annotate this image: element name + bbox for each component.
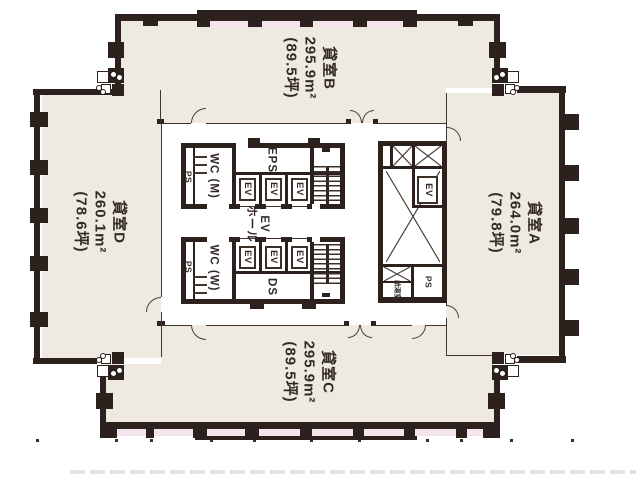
wall-segment: [458, 14, 473, 26]
wall-segment: [143, 14, 158, 26]
room-d-label: 貸室D 260.1m² (78.6坪): [72, 191, 129, 254]
elevator-door-line: [292, 206, 307, 207]
window-strip: [415, 429, 456, 436]
staircase: [314, 244, 340, 284]
wall-segment: [285, 242, 288, 274]
dot-mark: [571, 439, 574, 442]
x-brace-shaft: [393, 146, 412, 166]
wall-segment: [259, 175, 262, 204]
ps-upper-label: PS: [184, 171, 193, 183]
room-a-tsubo: (79.8坪): [487, 192, 506, 255]
window-strip: [262, 21, 300, 27]
dot-mark: [115, 439, 118, 442]
corner-fixture: [96, 68, 124, 96]
corner-fixture: [492, 352, 520, 380]
wall-segment: [340, 143, 345, 209]
wall-segment: [411, 267, 414, 297]
wall-segment: [559, 165, 579, 181]
wall-segment: [30, 312, 48, 327]
corner-fixture-part: [507, 365, 519, 377]
stall-partition-line: [193, 156, 207, 158]
wall-segment: [30, 256, 48, 271]
wall-segment: [559, 269, 579, 285]
boundary-line: [372, 325, 412, 326]
wall-segment: [181, 143, 345, 148]
window-strip: [313, 21, 353, 27]
wall-segment: [412, 205, 442, 208]
corner-fixture-part: [97, 365, 109, 377]
corner-fixture-part: [112, 84, 124, 96]
ev-label: EV: [268, 182, 278, 196]
room-c-name: 貸室C: [319, 341, 338, 404]
wall-segment: [559, 320, 579, 336]
wall-segment: [245, 422, 259, 438]
wall-segment: [30, 160, 48, 175]
wall-segment: [489, 42, 506, 58]
boundary-line: [446, 355, 494, 356]
wall-segment: [30, 112, 48, 127]
corner-fixture: [96, 352, 124, 380]
corner-fixture-part: [116, 367, 123, 374]
door-gap: [236, 143, 248, 148]
wall-segment: [193, 422, 207, 438]
wall-segment: [353, 422, 364, 438]
room-b-area: 295.9m²: [301, 37, 320, 100]
wall-segment: [259, 242, 262, 274]
boundary-line: [160, 90, 161, 123]
wall-segment: [232, 148, 236, 204]
room-fill: [446, 356, 494, 426]
door-gap: [312, 204, 320, 209]
window-strip: [259, 429, 300, 436]
wall-segment: [308, 138, 320, 143]
dot-mark: [510, 439, 513, 442]
corner-fixture-part: [116, 74, 123, 81]
room-b-name: 貸室B: [320, 37, 339, 100]
door-gap: [312, 237, 320, 242]
ev-hall-label: EV ホール: [244, 205, 270, 243]
room-d-tsubo: (78.6坪): [72, 191, 91, 254]
wc-men-label: WC (M): [207, 153, 220, 199]
room-c-area: 295.9m²: [300, 341, 319, 404]
wall-segment: [412, 169, 415, 208]
corner-fixture-part: [493, 367, 500, 374]
wall-segment: [559, 218, 579, 234]
wall-segment: [250, 304, 264, 309]
corner-fixture-part: [100, 89, 106, 95]
corner-fixture-part: [510, 353, 516, 359]
dot-mark: [36, 439, 39, 442]
wall-segment: [353, 10, 367, 27]
corner-fixture-part: [97, 71, 109, 83]
room-a-name: 貸室A: [525, 192, 544, 255]
wc-women-label: WC (W): [207, 245, 220, 292]
wall-segment: [96, 393, 113, 409]
wall-segment: [30, 208, 48, 223]
wall-segment: [248, 138, 260, 143]
room-b-tsubo: (89.5坪): [282, 37, 301, 100]
wall-segment: [456, 422, 467, 438]
corner-fixture: [492, 68, 520, 96]
boundary-line: [374, 123, 446, 124]
corner-fixture-part: [100, 353, 106, 359]
ev-label: EV: [294, 182, 304, 196]
room-d-area: 260.1m²: [91, 191, 110, 254]
door-gap: [207, 204, 229, 209]
ps-right-label: PS: [424, 276, 433, 288]
ev-service-label: EV: [423, 183, 433, 197]
corner-fixture-part: [112, 352, 124, 364]
wall-segment: [390, 146, 393, 166]
wall-segment: [300, 10, 313, 27]
wall-segment: [197, 10, 210, 27]
wall-segment: [302, 304, 316, 309]
corner-fixture-part: [499, 71, 506, 78]
boundary-line: [161, 325, 191, 326]
window-strip: [154, 429, 193, 436]
boundary-dash: [70, 470, 636, 474]
wall-segment: [404, 422, 415, 438]
ev-label: EV: [242, 182, 252, 196]
boundary-line: [426, 325, 446, 326]
wall-segment: [322, 148, 330, 152]
room-a-area: 264.0m²: [506, 192, 525, 255]
dot-mark: [460, 439, 463, 442]
corner-fixture-part: [493, 74, 500, 81]
wall-segment: [559, 114, 579, 130]
wall-segment: [442, 141, 447, 303]
boundary-line: [161, 312, 162, 357]
corner-fixture-part: [499, 370, 506, 377]
kitchenette-label: 給湯室: [394, 280, 401, 300]
room-c-label: 貸室C 295.9m² (89.5坪): [281, 341, 338, 404]
wall-segment: [146, 422, 154, 438]
wall-segment: [322, 293, 330, 297]
wall-segment: [285, 175, 288, 204]
dot-mark: [426, 439, 429, 442]
boundary-line: [161, 123, 162, 297]
room-a-label: 貸室A 264.0m² (79.8坪): [487, 192, 544, 255]
wall-segment: [108, 42, 124, 58]
ps-lower-label: PS: [184, 261, 193, 273]
corner-fixture-part: [492, 84, 504, 96]
wall-segment: [403, 10, 417, 27]
boundary-line: [161, 123, 191, 124]
eps-label: EPS: [265, 147, 278, 173]
wall-segment: [378, 297, 447, 303]
ds-label: DS: [265, 278, 278, 296]
boundary-line: [206, 123, 350, 124]
wall-segment: [517, 356, 566, 363]
window-strip: [210, 21, 248, 27]
wall-segment: [248, 10, 262, 27]
door-gap: [207, 237, 229, 242]
stall-partition-line: [193, 276, 207, 278]
boundary-line: [446, 318, 447, 355]
corner-fixture-part: [510, 89, 516, 95]
stall-partition-line: [193, 172, 207, 174]
room-d-name: 貸室D: [110, 191, 129, 254]
x-brace-shaft: [415, 146, 441, 166]
room-b-label: 貸室B 295.9m² (89.5坪): [282, 37, 339, 100]
wall-segment: [300, 422, 312, 438]
elevator-door-line: [292, 238, 307, 239]
ev-label: EV: [268, 250, 278, 264]
room-c-tsubo: (89.5坪): [281, 341, 300, 404]
ev-label: EV: [294, 250, 304, 264]
wall-segment: [488, 393, 505, 409]
stall-partition-line: [193, 292, 207, 294]
floor-plan-canvas: 貸室B 295.9m² (89.5坪) 貸室A 264.0m² (79.8坪) …: [0, 0, 640, 480]
window-strip: [367, 21, 403, 27]
stall-partition-line: [193, 284, 207, 286]
wall-segment: [412, 146, 415, 166]
boundary-line: [206, 325, 348, 326]
corner-fixture-part: [492, 352, 504, 364]
window-strip: [312, 429, 353, 436]
dot-mark: [150, 439, 153, 442]
window-strip: [364, 429, 404, 436]
window-strip: [117, 429, 146, 436]
ev-hall-line1: EV: [257, 205, 270, 243]
corner-fixture-part: [507, 71, 519, 83]
window-strip: [207, 429, 245, 436]
ev-hall-line2: ホール: [244, 205, 257, 243]
ev-label: EV: [242, 250, 252, 264]
wall-segment: [33, 358, 97, 364]
stall-partition-line: [193, 164, 207, 166]
x-brace-shaft: [384, 267, 410, 281]
staircase: [314, 166, 340, 204]
